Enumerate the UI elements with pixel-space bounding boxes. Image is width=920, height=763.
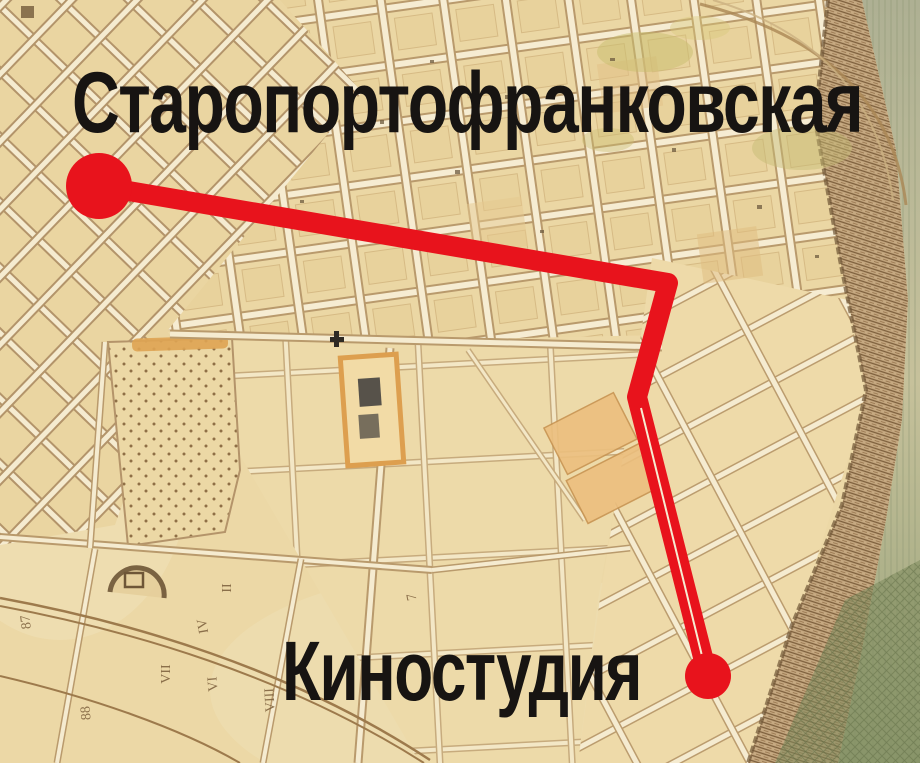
- historic-city-map: 8788IIIVVIVIIVIII7 Старопортофранковская…: [0, 0, 920, 763]
- route-end-marker: [685, 653, 731, 699]
- route-start-marker: [66, 153, 132, 219]
- street-label: Старопортофранковская: [72, 60, 862, 146]
- stippled-park-block: [108, 338, 240, 546]
- orange-building: [340, 354, 403, 466]
- destination-label: Киностудия: [282, 629, 641, 713]
